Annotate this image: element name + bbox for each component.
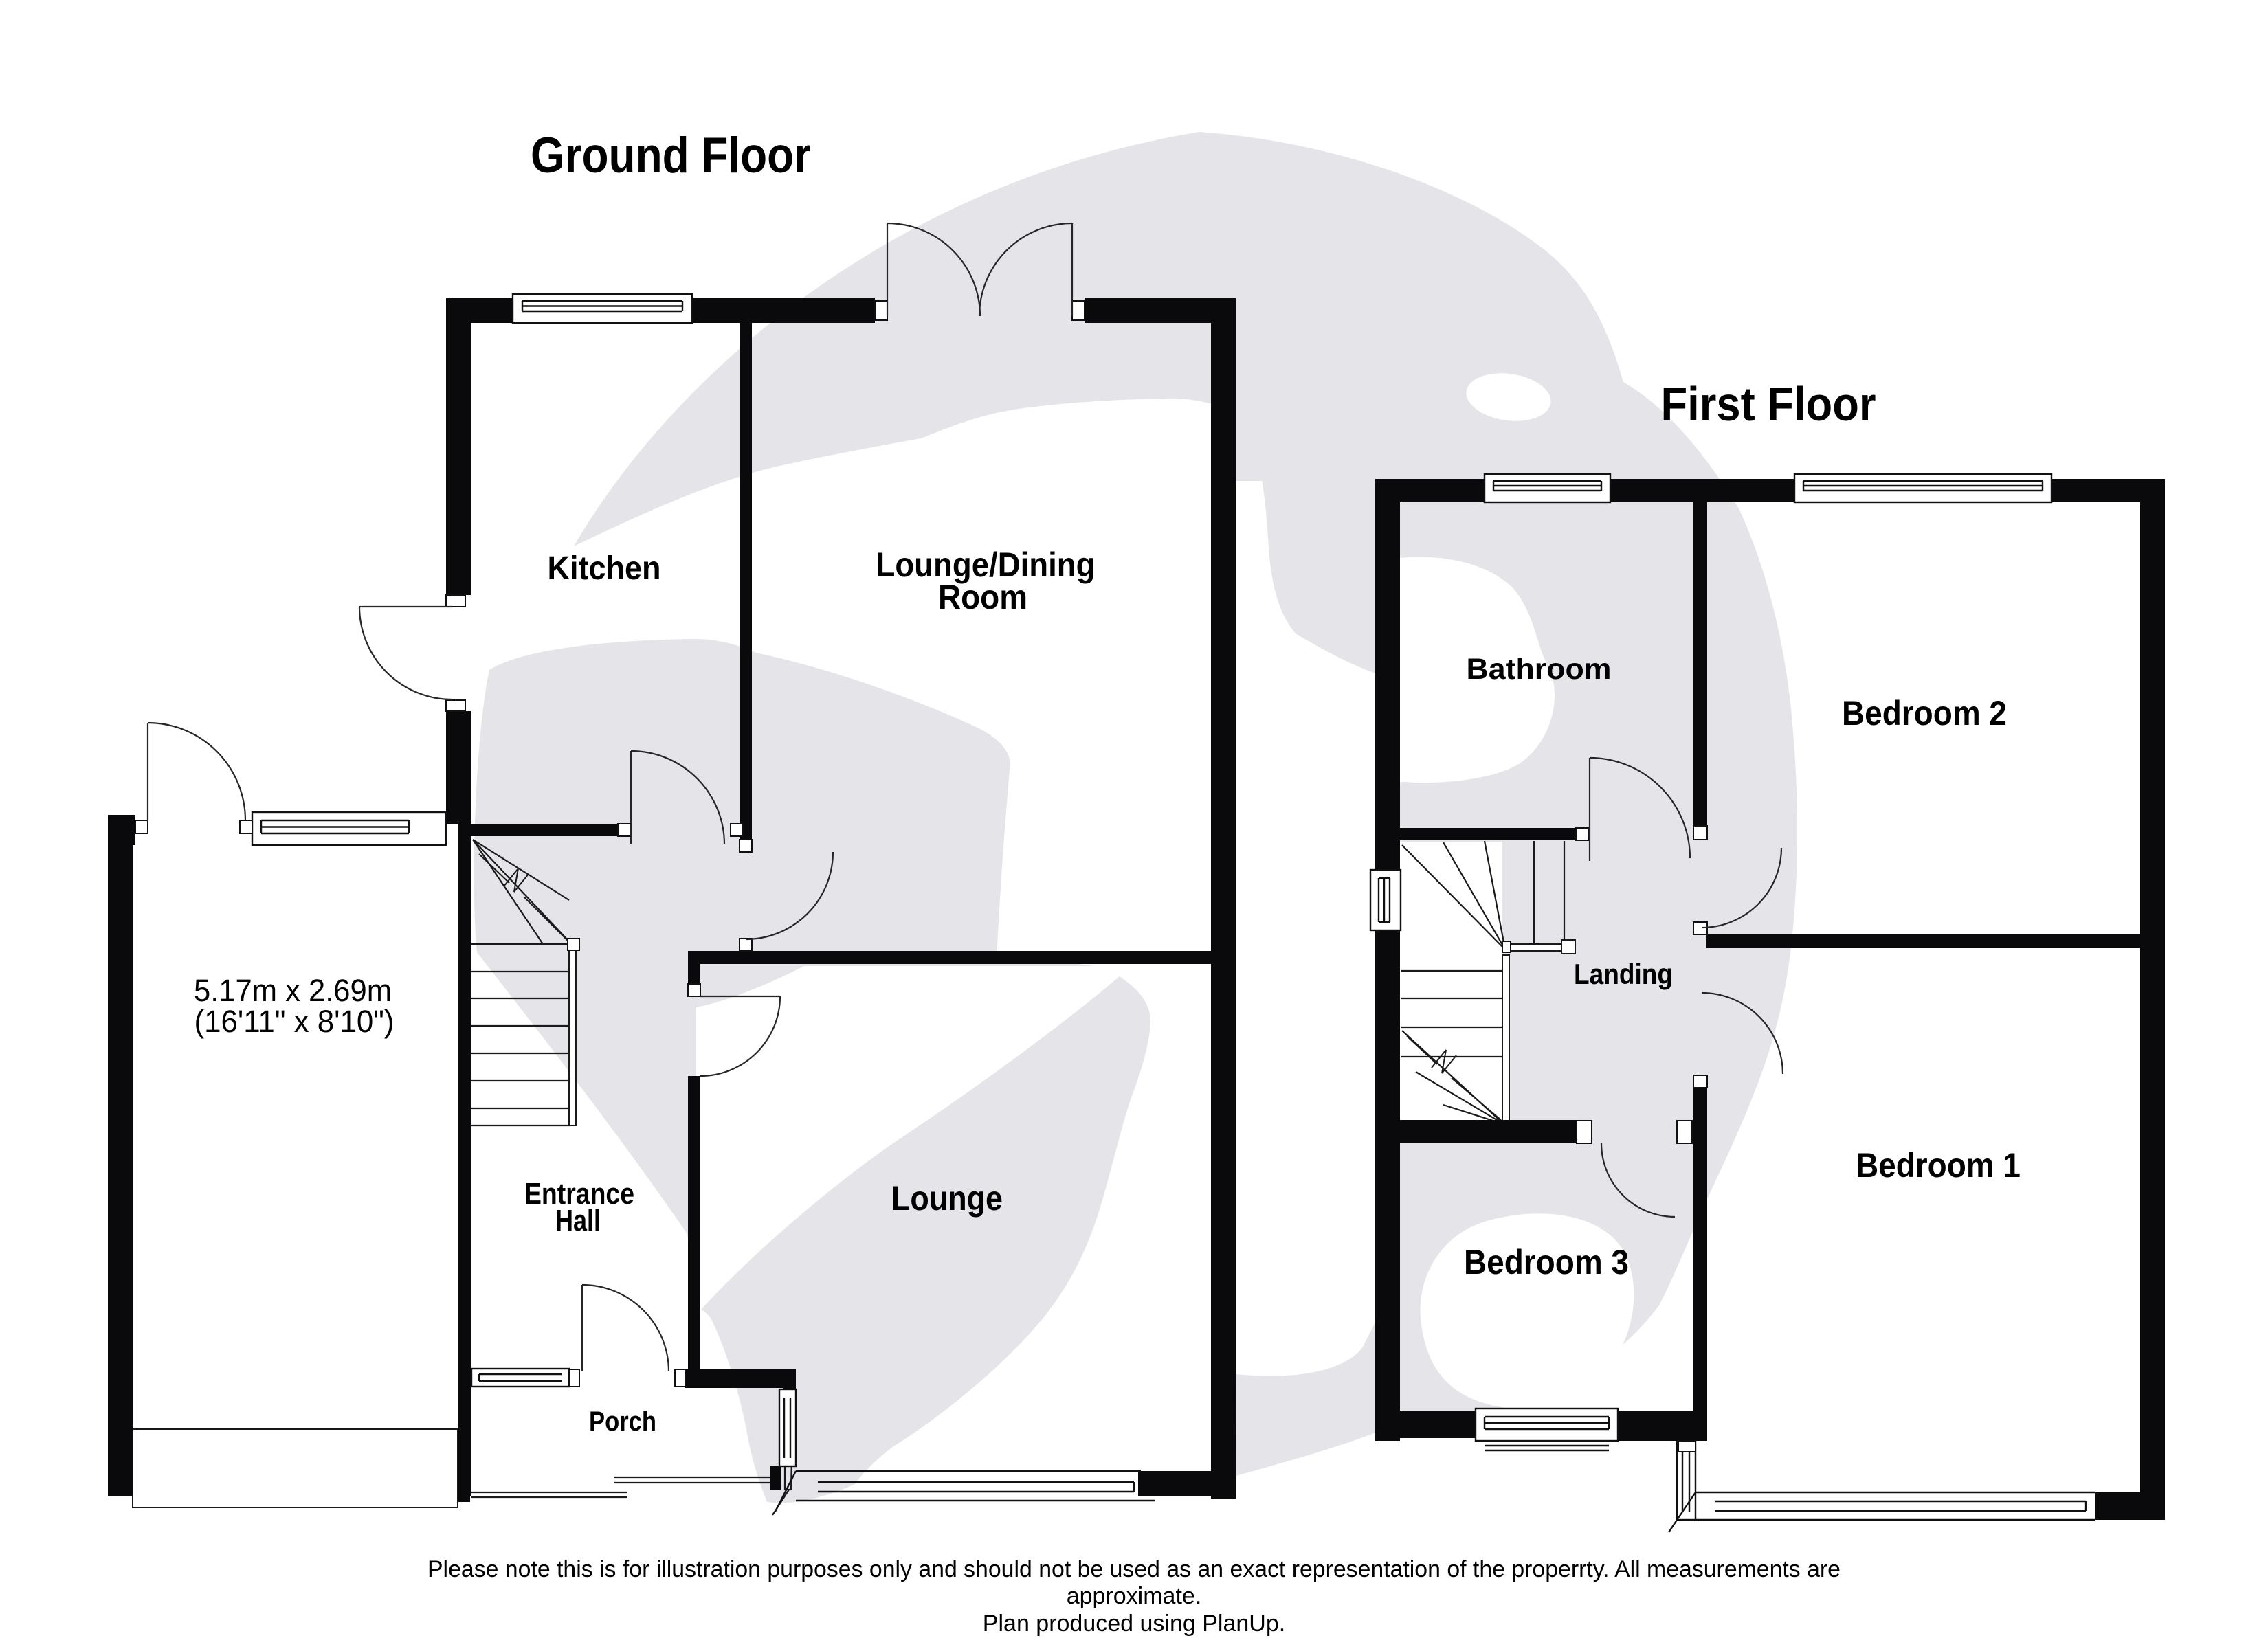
svg-text:approximate.: approximate.	[1067, 1583, 1202, 1609]
svg-text:Room: Room	[938, 578, 1027, 616]
svg-text:Kitchen: Kitchen	[548, 550, 661, 587]
svg-text:(16'11" x 8'10"): (16'11" x 8'10")	[194, 1004, 394, 1039]
svg-text:Bedroom 1: Bedroom 1	[1856, 1146, 2021, 1185]
svg-text:Landing: Landing	[1574, 958, 1673, 990]
svg-text:Ground Floor: Ground Floor	[531, 128, 811, 183]
svg-text:First Floor: First Floor	[1661, 377, 1876, 431]
svg-text:Bedroom 2: Bedroom 2	[1842, 694, 2007, 732]
svg-text:5.17m x 2.69m: 5.17m x 2.69m	[194, 973, 392, 1008]
svg-text:Plan produced using PlanUp.: Plan produced using PlanUp.	[983, 1611, 1285, 1637]
svg-text:Hall: Hall	[555, 1204, 601, 1237]
svg-text:Bathroom: Bathroom	[1467, 653, 1612, 686]
svg-text:Bedroom 3: Bedroom 3	[1464, 1243, 1629, 1281]
svg-text:Lounge: Lounge	[891, 1179, 1003, 1218]
svg-text:Please note this is for illust: Please note this is for illustration pur…	[427, 1556, 1841, 1582]
svg-text:Porch: Porch	[589, 1406, 656, 1437]
